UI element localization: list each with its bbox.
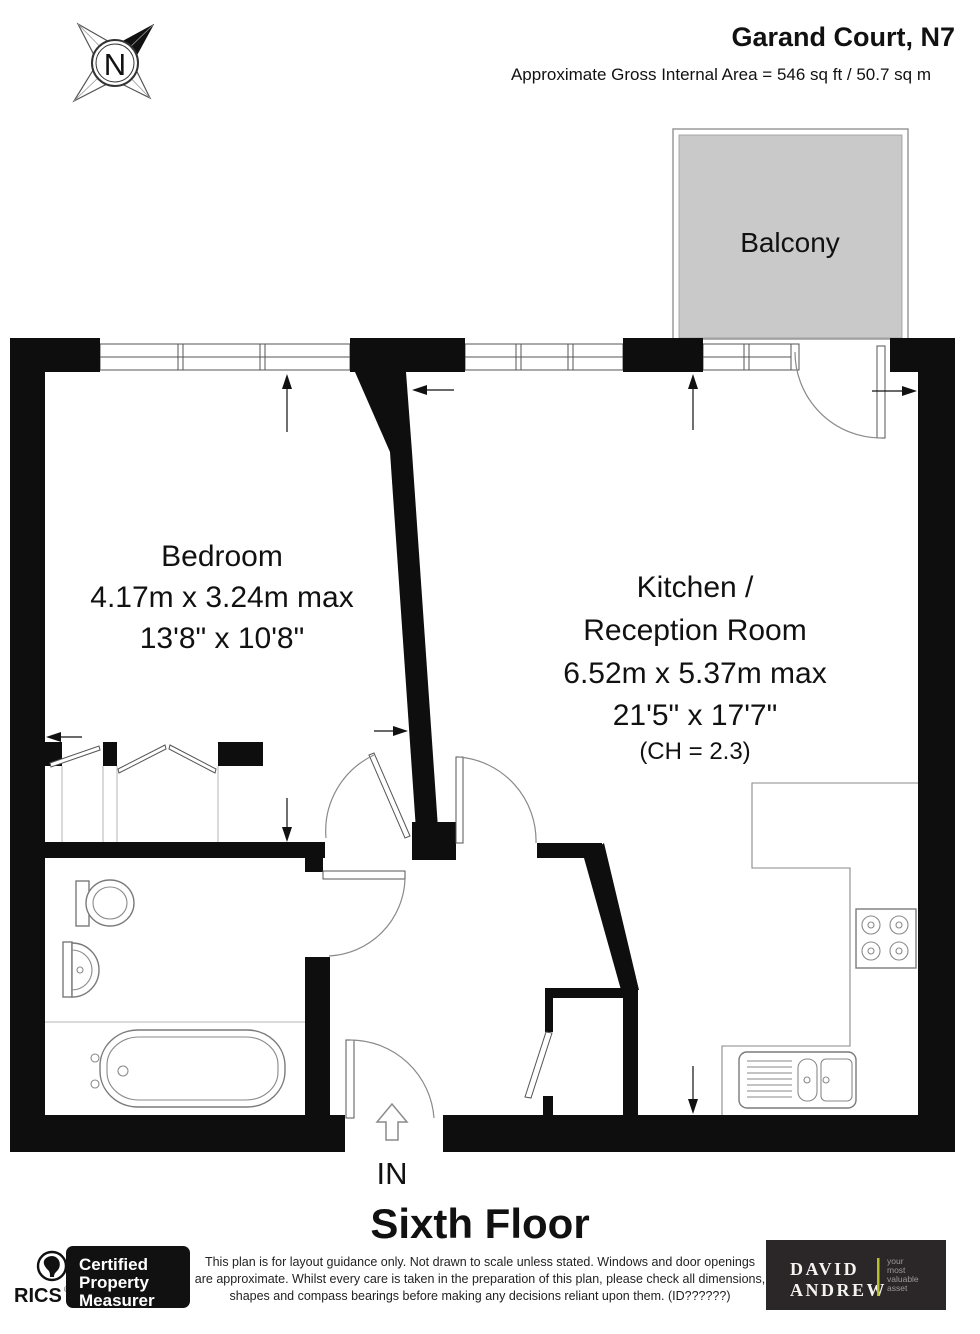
balcony-door-leaf <box>877 346 885 438</box>
rics-brand: RICS <box>14 1285 62 1307</box>
agency-accent-divider <box>877 1258 880 1296</box>
entrance-label: IN <box>377 1156 408 1191</box>
agency-name-line1: DAVID <box>790 1259 859 1279</box>
kitchen-door-leaf <box>456 757 463 843</box>
david-andrew-logo: DAVID ANDREW your most valuable asset <box>766 1240 946 1310</box>
agency-name-line2: ANDREW <box>790 1280 887 1300</box>
disclaimer-line1: This plan is for layout guidance only. N… <box>205 1255 755 1269</box>
divider-wall-column <box>355 372 412 452</box>
bedroom-dims-imperial: 13'8" x 10'8" <box>140 622 305 655</box>
kitchen-label-line2: Reception Room <box>583 614 806 647</box>
page-title: Garand Court, N7 <box>731 22 955 52</box>
closet-door-leaf <box>525 1032 552 1098</box>
hall-closet <box>525 1032 552 1098</box>
balcony: Balcony <box>673 129 908 339</box>
hall-diagonal-wall <box>584 843 639 990</box>
bedroom-dims-metric: 4.17m x 3.24m max <box>90 581 353 614</box>
kitchen-label-line1: Kitchen / <box>637 571 754 604</box>
badge-line1: Certified <box>79 1255 148 1274</box>
disclaimer-line3: shapes and compass bearings before makin… <box>230 1289 731 1303</box>
kitchen-door <box>456 757 536 843</box>
bathroom-door-leaf <box>323 871 405 879</box>
floorplan-page: Garand Court, N7 Approximate Gross Inter… <box>0 0 980 1334</box>
badge-line2: Property <box>79 1273 149 1292</box>
bedroom-door-leaf <box>369 753 410 838</box>
badge-line3: Measurer <box>79 1291 155 1310</box>
floorplan-drawing: Garand Court, N7 Approximate Gross Inter… <box>0 0 980 1334</box>
kitchen-dims-imperial: 21'5" x 17'7" <box>613 699 778 732</box>
agency-tagline-line4: asset <box>887 1283 908 1293</box>
bedroom-bottom-wall <box>10 842 325 858</box>
bedroom-label-block: Bedroom 4.17m x 3.24m max 13'8" x 10'8" <box>90 540 353 655</box>
balcony-label: Balcony <box>740 227 840 258</box>
entrance-marker: IN <box>377 1104 408 1191</box>
certified-property-measurer-badge: Certified Property Measurer <box>66 1246 190 1310</box>
wardrobe-door-leaf <box>169 745 216 773</box>
bathroom-door <box>323 871 405 956</box>
bedroom-label: Bedroom <box>161 540 283 573</box>
compass-rose-icon: N <box>74 24 153 101</box>
balcony-door <box>791 344 885 438</box>
bathroom-right-wall <box>305 957 330 1115</box>
bathroom-fixtures <box>45 880 305 1107</box>
kitchen-ceiling-height: (CH = 2.3) <box>639 738 750 765</box>
rics-logo: RICS ® <box>14 1252 70 1307</box>
compass-north-label: N <box>104 47 126 82</box>
kitchen-label-block: Kitchen / Reception Room 6.52m x 5.37m m… <box>563 571 826 765</box>
kitchen-dims-metric: 6.52m x 5.37m max <box>563 657 826 690</box>
basin-back <box>63 942 72 997</box>
disclaimer: This plan is for layout guidance only. N… <box>195 1255 765 1303</box>
floor-title: Sixth Floor <box>370 1200 589 1247</box>
bedroom-door <box>326 753 410 838</box>
dimension-arrows <box>46 374 917 1114</box>
divider-wall-diagonal <box>390 452 438 830</box>
disclaimer-line2: are approximate. Whilst every care is ta… <box>195 1272 765 1286</box>
kitchen-fixtures <box>722 783 918 1115</box>
entrance-arrow-icon <box>377 1104 407 1140</box>
entrance-door-leaf <box>346 1040 354 1118</box>
basin-icon <box>72 943 99 997</box>
wardrobe-door-leaf <box>118 745 166 773</box>
gross-internal-area: Approximate Gross Internal Area = 546 sq… <box>511 65 931 84</box>
bedroom-wardrobes <box>50 745 218 842</box>
